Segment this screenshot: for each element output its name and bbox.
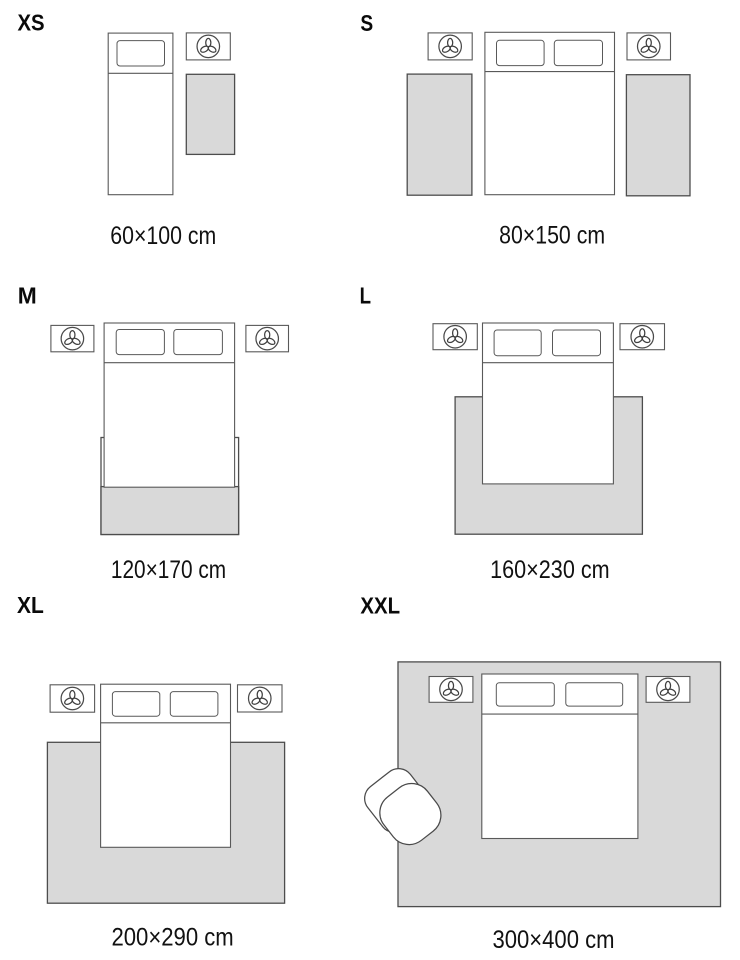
svg-text:80×150 cm: 80×150 cm xyxy=(499,222,605,250)
svg-text:200×290 cm: 200×290 cm xyxy=(111,923,233,951)
svg-text:300×400 cm: 300×400 cm xyxy=(493,926,615,954)
svg-text:L: L xyxy=(360,282,371,308)
svg-text:XXL: XXL xyxy=(360,593,400,619)
svg-text:160×230 cm: 160×230 cm xyxy=(490,556,610,584)
svg-text:XL: XL xyxy=(17,592,44,618)
svg-text:XS: XS xyxy=(18,10,45,36)
svg-text:60×100 cm: 60×100 cm xyxy=(110,222,216,250)
svg-text:S: S xyxy=(360,10,373,36)
svg-text:M: M xyxy=(18,282,37,308)
svg-text:120×170 cm: 120×170 cm xyxy=(111,556,226,584)
